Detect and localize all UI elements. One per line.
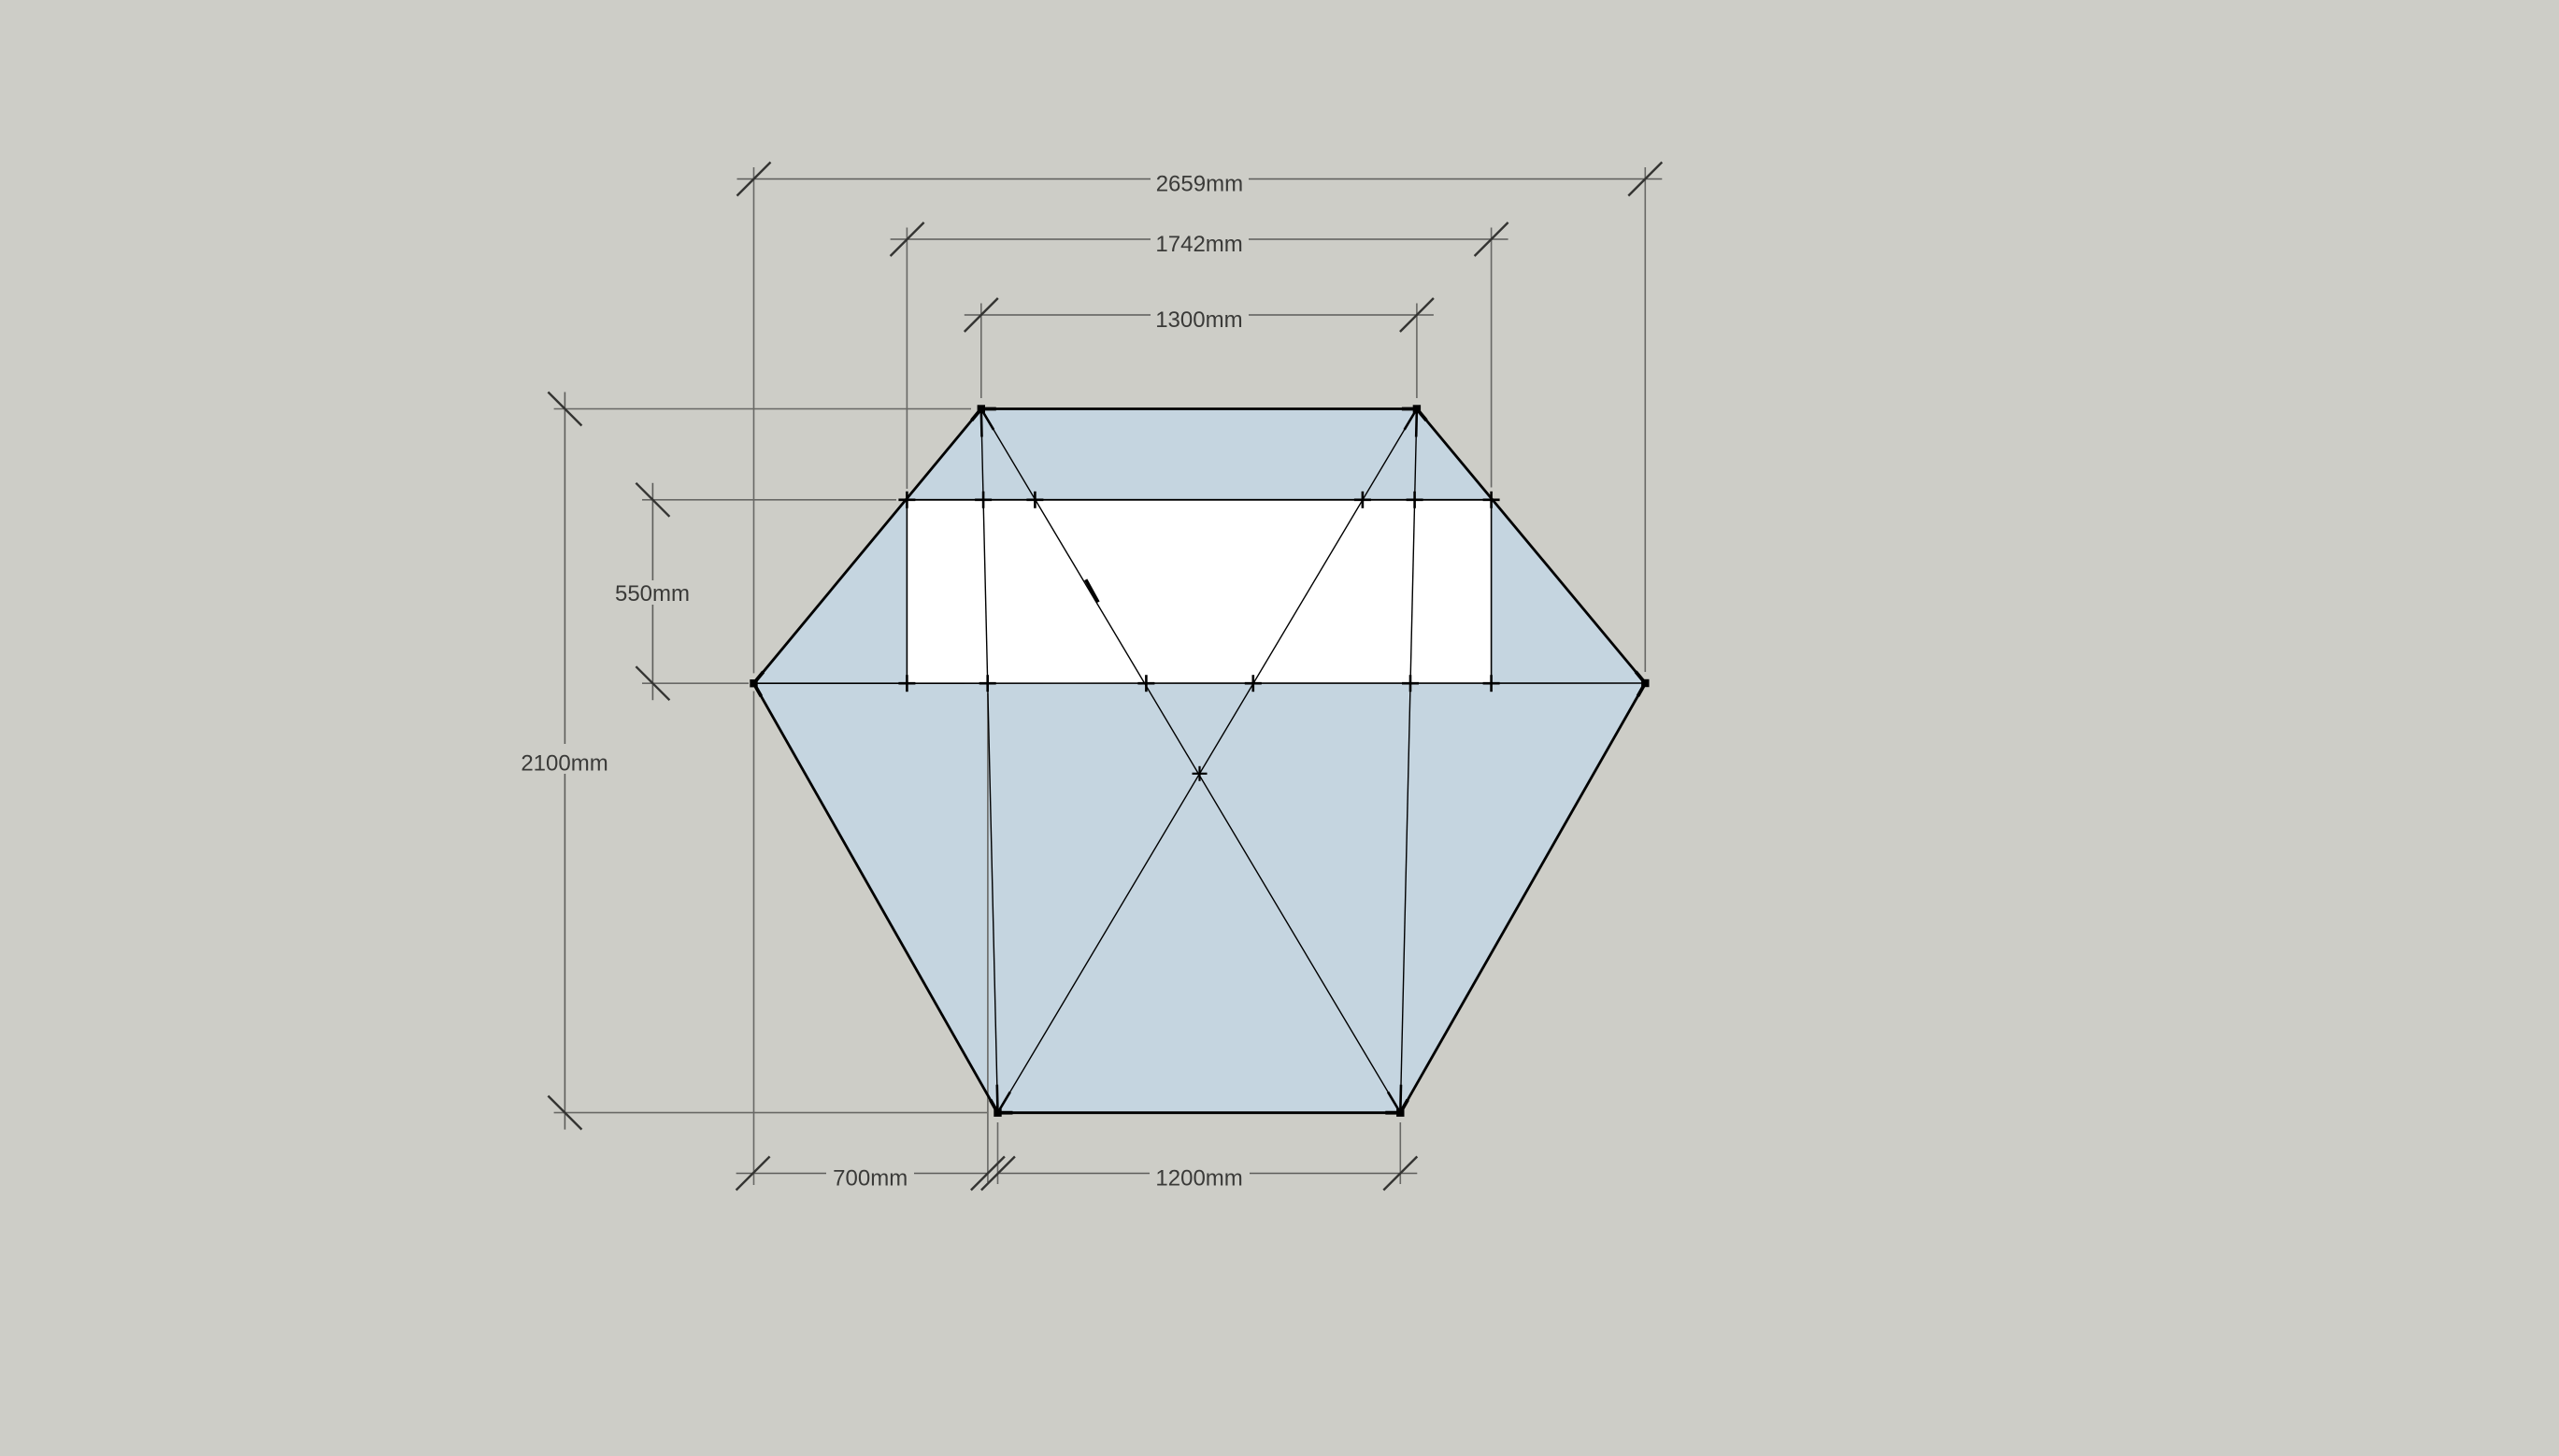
svg-text:700mm: 700mm [833,1166,908,1192]
svg-text:2100mm: 2100mm [521,751,608,777]
svg-text:1742mm: 1742mm [1155,232,1242,257]
svg-text:1300mm: 1300mm [1155,307,1242,333]
svg-text:550mm: 550mm [615,581,690,607]
svg-text:2659mm: 2659mm [1156,172,1243,197]
svg-text:1200mm: 1200mm [1155,1166,1242,1192]
